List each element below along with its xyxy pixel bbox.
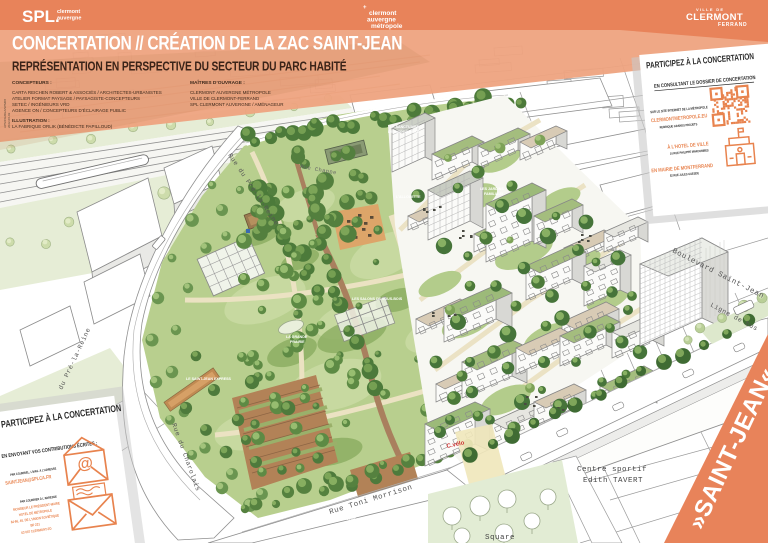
svg-text:SPL CLERMONT AUVERGNE / AMÉNAG: SPL CLERMONT AUVERGNE / AMÉNAGEUR [190,101,284,107]
svg-text:REPRÉSENTATION EN PERSPECTIVE: REPRÉSENTATION EN PERSPECTIVE DU SECTEUR… [12,59,347,73]
svg-text:SETEC / INGÉNIEURS VRD: SETEC / INGÉNIEURS VRD [12,101,70,107]
svg-text:ATELIER FORMAT PAYSAGE / PAYSA: ATELIER FORMAT PAYSAGE / PAYSAGISTE-CONC… [12,96,140,101]
svg-text:LA GRANDE: LA GRANDE [286,335,308,339]
svg-text:VILLE DE CLERMONT-FERRAND: VILLE DE CLERMONT-FERRAND [190,96,260,101]
svg-text:LA SCÈNE: LA SCÈNE [338,516,357,521]
svg-text:Edith TAVERT: Edith TAVERT [583,477,643,485]
svg-text:auvergne: auvergne [57,16,81,22]
svg-text:CONCEPTEURS :: CONCEPTEURS : [12,80,52,86]
svg-text:clermont: clermont [57,9,80,15]
svg-text:Centre sportif: Centre sportif [577,466,647,474]
svg-text:DE BIODIVERSITÉ: DE BIODIVERSITÉ [388,129,420,134]
svg-text:SPL.: SPL. [22,7,60,26]
svg-text:PRAIRIE: PRAIRIE [290,340,305,344]
svg-text:LE SAINT-JEAN EXPRESS: LE SAINT-JEAN EXPRESS [186,377,232,381]
svg-text:CARTA REICHEN ROBERT & ASSOCIÉ: CARTA REICHEN ROBERT & ASSOCIÉS / ARCHIT… [12,89,162,95]
svg-text:métropole: métropole [371,23,403,30]
svg-text:CONCERTATION // CRÉATION DE LA: CONCERTATION // CRÉATION DE LA ZAC SAINT… [12,31,402,54]
svg-text:FERRAND: FERRAND [718,22,747,28]
svg-text:LES SALONS DE SOUS-BOIS: LES SALONS DE SOUS-BOIS [352,297,403,301]
svg-text:LES JARDINS: LES JARDINS [480,187,504,191]
svg-text:L’ALLOUETTE: L’ALLOUETTE [396,195,421,199]
svg-text:2022-06-02: 2022-06-02 [7,112,11,128]
svg-text:Square: Square [485,534,515,542]
svg-text:LE SANCTUAIRE: LE SANCTUAIRE [390,125,420,129]
svg-text:AGENCE ON / CONCEPTEURS D’ÉCLA: AGENCE ON / CONCEPTEURS D’ÉCLAIRAGE PUBL… [12,107,127,113]
svg-text:CLERMONT AUVERGNE MÉTROPOLE: CLERMONT AUVERGNE MÉTROPOLE [190,89,271,95]
svg-text:@: @ [76,454,94,473]
svg-text:LA FABRIQUE ORLIK (BÉNÉDICTE P: LA FABRIQUE ORLIK (BÉNÉDICTE PAPILLOUD) [12,123,113,129]
svg-text:+: + [363,5,367,11]
svg-text:FAMILIAUX: FAMILIAUX [484,192,504,196]
